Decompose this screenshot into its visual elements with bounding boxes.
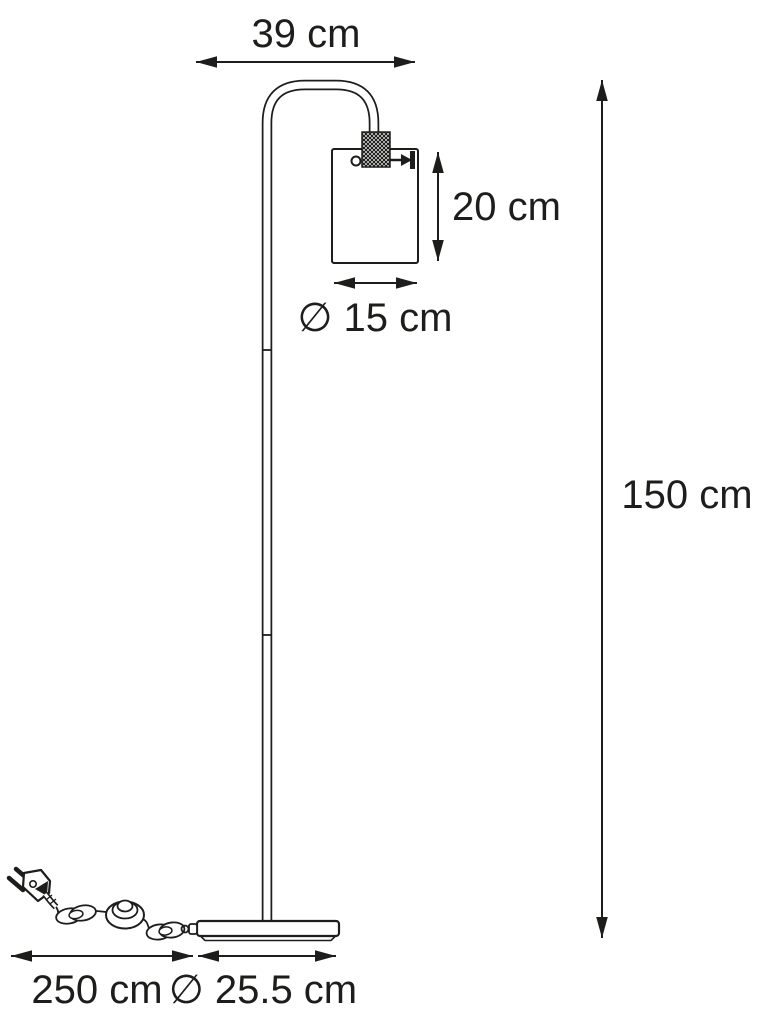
cable-length-label: 250 cm <box>31 968 162 1012</box>
dimension-base-diameter: ∅ 25.5 cm <box>169 956 357 1012</box>
cord-coil-right <box>146 921 186 941</box>
wing-screw-bar <box>410 151 415 169</box>
dimension-cable-length: 250 cm <box>11 956 193 1012</box>
arm-width-label: 39 cm <box>252 12 361 56</box>
dimension-shade-diameter: ∅ 15 cm <box>298 283 453 340</box>
base-plate <box>197 921 339 936</box>
lamp-base <box>189 921 339 941</box>
foot-switch-button <box>118 901 133 912</box>
lamp-height-label: 150 cm <box>621 473 752 517</box>
cord-segment <box>95 911 107 912</box>
power-cord <box>9 869 189 941</box>
lamp-socket <box>362 132 390 167</box>
foot-switch <box>106 901 144 929</box>
cord-coil-left <box>55 903 97 925</box>
dimension-arm-width: 39 cm <box>196 12 415 62</box>
dimension-shade-height: 20 cm <box>438 152 561 261</box>
plug-prong <box>9 878 23 890</box>
base-diameter-label: ∅ 25.5 cm <box>169 968 357 1012</box>
dimension-lamp-height: 150 cm <box>602 80 753 938</box>
diagram-canvas: 39 cm 20 cm ∅ 15 cm 150 cm <box>0 0 765 1020</box>
plug-screw <box>30 881 36 887</box>
floor-lamp-dimension-diagram: 39 cm 20 cm ∅ 15 cm 150 cm <box>0 0 765 1020</box>
power-plug <box>9 869 56 907</box>
shade-diameter-label: ∅ 15 cm <box>298 296 453 340</box>
cord-entry-nub <box>189 924 197 934</box>
shade-height-label: 20 cm <box>452 185 561 229</box>
shade-ring-eyelet <box>352 157 361 166</box>
